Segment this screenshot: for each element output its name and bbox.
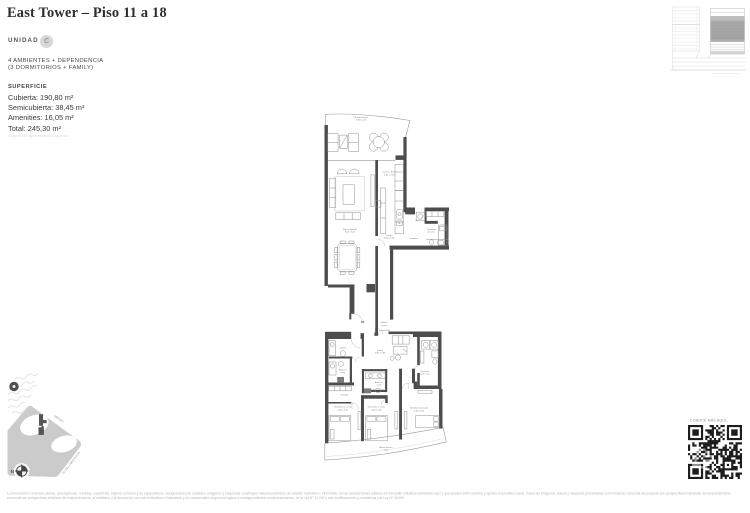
svg-text:Lavadero: Lavadero [409, 237, 419, 240]
svg-text:Toilette: Toilette [339, 346, 346, 349]
svg-text:Cocina - Barra: Cocina - Barra [383, 171, 397, 174]
svg-text:Vestidor: Vestidor [341, 393, 349, 396]
svg-text:acceso: acceso [381, 325, 388, 327]
svg-text:4,80 x 3,80: 4,80 x 3,80 [375, 353, 386, 355]
svg-text:Estar comedor: Estar comedor [343, 228, 357, 231]
svg-text:Balcón terraza: Balcón terraza [354, 116, 368, 119]
svg-text:3,60 x 1,50: 3,60 x 1,50 [356, 120, 367, 122]
svg-text:Dormitorio en suite: Dormitorio en suite [368, 406, 386, 409]
svg-text:Family: Family [377, 350, 384, 352]
svg-text:Hall de: Hall de [381, 322, 388, 324]
svg-text:Escritorio: Escritorio [421, 370, 431, 373]
svg-text:Baño en: Baño en [375, 381, 384, 384]
svg-text:suite: suite [341, 371, 346, 374]
svg-text:Dorm. serv.: Dorm. serv. [420, 373, 431, 376]
svg-text:Dormitorio: Dormitorio [427, 228, 437, 231]
svg-text:Balcón terraza: Balcón terraza [379, 446, 393, 449]
svg-text:4,00 x 3,20: 4,00 x 3,20 [338, 409, 349, 411]
svg-text:MÉNDEZ: MÉNDEZ [53, 413, 65, 424]
svg-text:Dormitorio en suite: Dormitorio en suite [334, 406, 352, 409]
svg-text:4,30 x 3,40: 4,30 x 3,40 [414, 410, 425, 412]
svg-text:Cocina: Cocina [386, 235, 393, 237]
svg-text:4,60 x 2,30: 4,60 x 2,30 [384, 238, 395, 240]
svg-text:de serv.: de serv. [428, 231, 436, 234]
svg-text:suite: suite [377, 384, 382, 387]
svg-text:Dormitorio principal: Dormitorio principal [410, 407, 428, 410]
svg-text:8,00 x 6,20: 8,00 x 6,20 [345, 232, 356, 234]
svg-text:4,60 x 2,30: 4,60 x 2,30 [384, 174, 395, 176]
svg-text:Baño en: Baño en [339, 368, 348, 371]
svg-text:3,80 x 3,00: 3,80 x 3,00 [371, 409, 382, 411]
